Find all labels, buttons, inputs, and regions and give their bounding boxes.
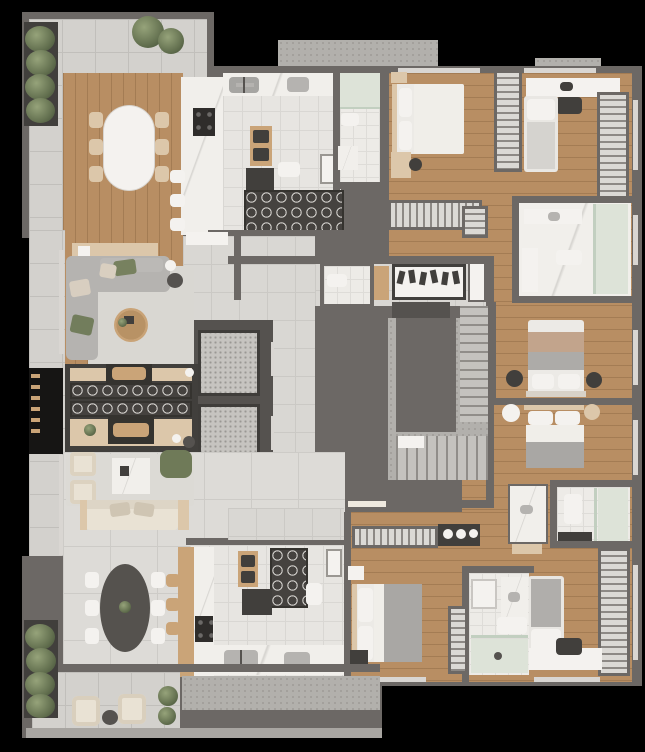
sphere-lamp	[165, 260, 176, 271]
sofa-l-chaise	[66, 256, 98, 360]
pillow-beige	[99, 263, 117, 280]
vanity-island	[510, 486, 546, 542]
window	[633, 330, 638, 385]
lower-foyer	[228, 508, 344, 540]
headboard	[524, 405, 584, 410]
shower-drain	[494, 652, 502, 660]
desk	[391, 152, 411, 178]
wine-rack-upper	[244, 190, 344, 232]
pot	[443, 529, 453, 539]
shower	[598, 488, 628, 542]
pillow	[555, 411, 580, 425]
trellis-step	[31, 396, 40, 400]
stair-void	[396, 318, 456, 432]
vase	[185, 368, 194, 377]
toilet	[327, 274, 347, 287]
dining-chair	[89, 112, 103, 128]
door-mat	[392, 302, 450, 318]
oven	[253, 130, 269, 143]
pillow-beige	[69, 278, 91, 297]
blanket-gray	[531, 579, 561, 627]
closet-shelf	[462, 206, 488, 238]
dining-table-upper	[104, 106, 154, 190]
wall	[512, 196, 519, 303]
planter-plant	[25, 624, 55, 650]
pot	[469, 529, 478, 538]
headboard	[392, 84, 397, 154]
pillow	[532, 374, 554, 389]
desk-chair	[556, 97, 582, 114]
wardrobe	[597, 92, 629, 204]
pillow	[399, 88, 412, 117]
dining-chair	[151, 572, 165, 588]
headboard	[526, 391, 586, 397]
toilet	[556, 250, 582, 265]
centerpiece-plant	[119, 601, 131, 613]
core-wall	[234, 236, 241, 300]
window	[633, 420, 638, 475]
pillow	[527, 99, 555, 120]
kitchen-island-upper	[181, 77, 223, 235]
planter-plant	[26, 694, 55, 718]
firewood	[112, 367, 146, 380]
bar-stool	[170, 218, 185, 231]
pillow	[399, 121, 412, 150]
bath-counter	[471, 579, 497, 609]
pot	[456, 529, 466, 539]
balcony-bush	[158, 707, 176, 725]
coffee-table-marble	[112, 458, 150, 494]
vanity-counter	[522, 248, 538, 292]
blanket	[527, 122, 555, 169]
shower-glass	[594, 488, 597, 542]
blanket-gray	[384, 584, 422, 662]
dining-chair	[85, 628, 99, 644]
closet	[448, 606, 468, 674]
nightstand-round	[502, 404, 520, 422]
blanket-tan	[528, 332, 584, 352]
vanity	[338, 146, 358, 170]
planter-plant	[26, 98, 55, 123]
elevator-door	[271, 342, 274, 376]
window	[398, 68, 480, 73]
shower-glass	[593, 204, 596, 294]
wall	[382, 70, 389, 185]
single-sink	[287, 77, 309, 92]
blanket-gray	[526, 442, 584, 468]
window	[633, 100, 638, 170]
window	[633, 215, 638, 265]
dining-chair	[89, 166, 103, 182]
elevator-shaft	[198, 330, 260, 396]
window	[59, 250, 64, 354]
pillow	[528, 411, 553, 425]
oven	[241, 555, 255, 567]
dining-chair	[85, 572, 99, 588]
dining-chair	[151, 628, 165, 644]
toilet	[341, 113, 359, 126]
nightstand-round	[584, 404, 600, 420]
nightstand	[391, 72, 407, 83]
wall	[333, 70, 340, 190]
terrace-bush	[158, 28, 184, 54]
wall	[494, 398, 640, 405]
planter-plant	[25, 74, 55, 100]
blanket-gray	[528, 352, 584, 370]
sink-divider	[243, 77, 245, 93]
nightstand-round	[586, 372, 602, 388]
shower-glass	[471, 635, 528, 638]
trellis-step	[31, 385, 40, 389]
toilet	[564, 494, 582, 524]
window	[534, 677, 600, 682]
balcony-bush	[158, 686, 178, 706]
dining-chair	[155, 139, 169, 155]
dining-chair	[89, 139, 103, 155]
service-balcony	[182, 676, 380, 710]
shower-master	[596, 204, 628, 294]
side-table	[183, 436, 195, 448]
hall-console	[186, 232, 228, 245]
sheet	[526, 425, 584, 442]
wine-rack-row	[70, 401, 192, 417]
stair-landing	[398, 436, 424, 448]
wall	[550, 480, 638, 487]
island-wood-lower	[178, 547, 194, 677]
sofa-back	[86, 500, 178, 509]
bar-stool-wood	[166, 598, 180, 611]
ottoman	[102, 710, 118, 725]
sink	[520, 505, 533, 514]
wall	[60, 664, 380, 672]
desk-chair	[556, 638, 582, 655]
dining-chair	[85, 600, 99, 616]
wall	[550, 541, 638, 548]
planter-plant	[25, 26, 55, 52]
planter-plant	[26, 648, 56, 674]
window	[633, 565, 638, 660]
pillow	[358, 588, 373, 622]
closet-run	[352, 526, 438, 548]
sink	[548, 212, 560, 221]
pillow	[558, 374, 580, 389]
sofa-cushion	[133, 258, 163, 272]
oven	[241, 571, 255, 583]
wine-rack-lower	[270, 548, 308, 608]
elevator-door	[271, 416, 274, 450]
bar-stool-wood	[166, 574, 180, 587]
pantry-cabinet	[242, 589, 272, 615]
dining-chair	[155, 112, 169, 128]
wardrobe	[598, 548, 630, 676]
service-toilet-upper	[278, 162, 300, 177]
nightstand-round	[506, 370, 523, 387]
utility-cabinet	[326, 549, 342, 577]
bar-stool	[170, 194, 185, 207]
bench-plant	[84, 424, 96, 436]
armchair	[70, 452, 96, 476]
trellis-step	[31, 429, 40, 433]
trellis-step	[31, 374, 40, 378]
wardrobe	[494, 70, 522, 172]
sink	[508, 592, 520, 602]
planter-plant	[26, 50, 56, 76]
floor-plan	[0, 0, 645, 752]
duvet	[414, 84, 464, 154]
sofa-side-table	[80, 500, 87, 530]
sheet	[374, 584, 384, 662]
table-decor	[120, 466, 129, 476]
sofa-side-table	[178, 500, 189, 530]
oven	[253, 148, 269, 161]
trellis-step	[31, 407, 40, 411]
window	[524, 68, 596, 73]
armchair-green	[160, 450, 192, 478]
tall-cabinet	[468, 262, 486, 302]
wicker-armchair	[118, 694, 146, 724]
door-leaf	[348, 501, 386, 507]
wall	[462, 566, 534, 573]
balcony-recess	[29, 368, 63, 454]
bar-stool-wood	[166, 622, 180, 635]
stair-run-right	[460, 306, 488, 422]
dining-chair	[155, 166, 169, 182]
side-table	[167, 273, 183, 288]
firewood	[113, 423, 149, 437]
pantry-cabinet	[246, 168, 274, 192]
entry-cabinet	[374, 266, 389, 300]
cooktop-upper	[193, 108, 215, 136]
wine-rack-row	[70, 383, 192, 399]
shower-glass	[340, 107, 380, 109]
wall	[550, 480, 557, 548]
wall	[512, 296, 642, 303]
service-toilet-lower	[306, 583, 322, 605]
laptop	[560, 82, 573, 91]
toilet	[497, 617, 527, 634]
cooktop-lower	[195, 616, 213, 642]
trellis-step	[31, 418, 40, 422]
sphere-lamp	[172, 434, 181, 443]
desk-chair	[409, 158, 422, 171]
nightstand	[348, 566, 364, 580]
wall	[512, 196, 642, 203]
balcony-parapet	[26, 728, 382, 738]
vanity-bench	[512, 544, 542, 554]
pillow	[109, 502, 131, 518]
wicker-armchair	[72, 696, 100, 726]
table-plant	[118, 318, 127, 327]
shower-upper	[340, 73, 380, 107]
bar-stool	[170, 170, 185, 183]
dining-chair	[151, 600, 165, 616]
